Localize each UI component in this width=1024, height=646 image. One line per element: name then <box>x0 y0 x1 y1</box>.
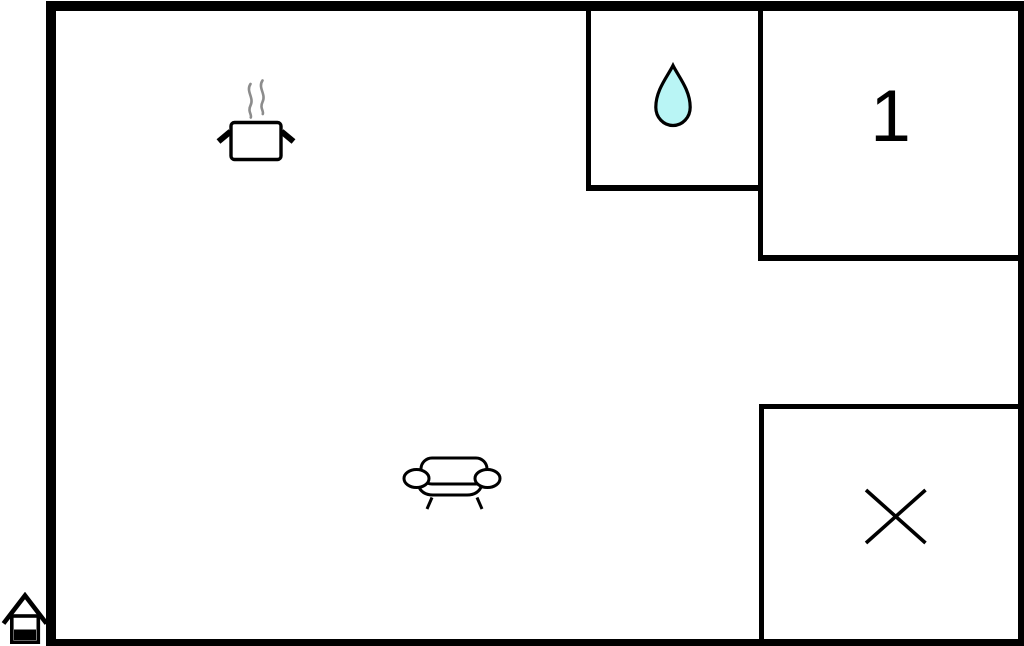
pot-handle-right <box>282 132 294 142</box>
pot-body <box>231 123 281 160</box>
sofa-armrest-right <box>475 470 500 488</box>
water-drop-shape <box>656 66 690 126</box>
sofa-leg-left <box>427 498 432 510</box>
steam-line <box>249 84 252 118</box>
sofa-leg-right <box>477 498 482 510</box>
closed-area-top-wall <box>759 404 1018 409</box>
sofa-icon <box>395 445 505 520</box>
bathroom-left-wall <box>586 11 591 191</box>
bathroom-bottom-wall <box>586 185 763 191</box>
pot-handle-left <box>219 132 231 142</box>
steam-line <box>261 81 264 115</box>
sofa-armrest-left <box>404 470 429 488</box>
x-mark-icon <box>860 485 932 549</box>
sofa-seat <box>418 485 482 495</box>
house-icon <box>1 592 49 644</box>
bedroom1-number: 1 <box>763 11 1018 221</box>
closed-area-left-wall <box>759 404 764 639</box>
cooking-pot-icon <box>210 70 300 165</box>
bedroom1-bottom-wall <box>758 255 1018 261</box>
floor-plan: 1 <box>0 0 1024 646</box>
house-body-fill <box>14 630 36 641</box>
water-drop-icon <box>650 60 696 130</box>
